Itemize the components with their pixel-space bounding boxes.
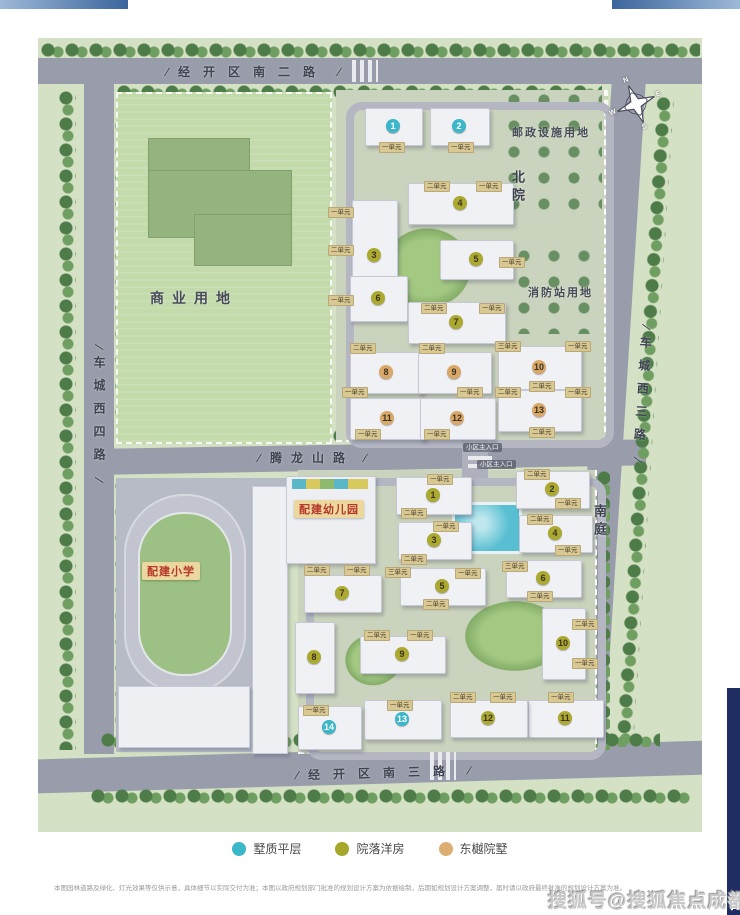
unit-label: 二单元	[572, 619, 598, 630]
building-number-marker: 1	[386, 119, 400, 133]
unit-label: 一单元	[328, 295, 354, 306]
building-number-marker: 13	[395, 712, 409, 726]
legend-item-flat: 墅质平层	[232, 840, 301, 857]
top-right-blue-trim	[612, 0, 740, 9]
unit-label: 三单元	[495, 341, 521, 352]
unit-label: 二单元	[527, 591, 553, 602]
unit-label: 二单元	[424, 181, 450, 192]
unit-label: 一单元	[455, 568, 481, 579]
entrance-label-north: 小区主入口	[463, 443, 502, 452]
unit-label: 一单元	[355, 429, 381, 440]
building-number-marker: 9	[447, 365, 461, 379]
building-number-marker: 11	[380, 411, 394, 425]
unit-label: 一单元	[479, 303, 505, 314]
building-number-marker: 7	[335, 586, 349, 600]
unit-label: 二单元	[401, 508, 427, 519]
building-number-marker: 6	[536, 571, 550, 585]
building-number-marker: 7	[449, 315, 463, 329]
unit-label: 一单元	[565, 387, 591, 398]
unit-label: 一单元	[555, 498, 581, 509]
unit-label: 二单元	[421, 303, 447, 314]
compass-north-letter: N	[622, 76, 629, 84]
road-label-middle: 腾龙山路	[248, 449, 376, 466]
watermark-text: 搜狐号@搜狐焦点成都站	[548, 886, 740, 913]
building-number-marker: 10	[532, 360, 546, 374]
site-plan-page: 配建幼儿园 配建小学 12345678910111213123456789101…	[0, 0, 740, 915]
building-number-marker: 4	[548, 526, 562, 540]
unit-label: 一单元	[490, 692, 516, 703]
unit-label: 二单元	[328, 245, 354, 256]
unit-label: 一单元	[565, 341, 591, 352]
flat-color-dot	[232, 842, 246, 856]
building-number-marker: 12	[481, 711, 495, 725]
building-number-marker: 3	[427, 533, 441, 547]
road-label-west-4: 车城西四路	[91, 338, 108, 489]
building-number-marker: 14	[322, 720, 336, 734]
building-number-marker: 8	[307, 650, 321, 664]
commercial-land-label: 商业用地	[150, 288, 238, 308]
building-number-marker: 4	[453, 196, 467, 210]
building-number-marker: 10	[556, 636, 570, 650]
legend-label: 院落洋房	[356, 840, 404, 857]
legend-label: 墅质平层	[253, 840, 301, 857]
unit-label: 一单元	[344, 565, 370, 576]
unit-label: 一单元	[499, 257, 525, 268]
unit-label: 二单元	[304, 565, 330, 576]
legend: 墅质平层 院落洋房 东樾院墅	[0, 840, 740, 857]
building-number-marker: 2	[545, 482, 559, 496]
building-number-marker: 5	[435, 579, 449, 593]
unit-label: 一单元	[407, 630, 433, 641]
unit-label: 一单元	[342, 387, 368, 398]
unit-label: 一单元	[433, 521, 459, 532]
unit-label: 二单元	[527, 514, 553, 525]
legend-item-courtyard: 东樾院墅	[439, 840, 508, 857]
legend-label: 东樾院墅	[460, 840, 508, 857]
right-navy-trim	[727, 688, 740, 915]
building-number-marker: 12	[450, 411, 464, 425]
unit-label: 一单元	[476, 181, 502, 192]
unit-label: 二单元	[419, 343, 445, 354]
building-number-marker: 13	[532, 403, 546, 417]
unit-label: 一单元	[427, 474, 453, 485]
compass-west-letter: W	[609, 108, 618, 117]
unit-label: 一单元	[548, 692, 574, 703]
unit-label: 一单元	[303, 705, 329, 716]
top-left-blue-trim	[0, 0, 128, 9]
courtyard-color-dot	[439, 842, 453, 856]
unit-label: 三单元	[385, 567, 411, 578]
building-number-marker: 3	[367, 248, 381, 262]
unit-label: 二单元	[401, 554, 427, 565]
unit-label: 二单元	[450, 692, 476, 703]
unit-label: 一单元	[424, 429, 450, 440]
building-number-marker: 1	[426, 488, 440, 502]
unit-label: 二单元	[524, 469, 550, 480]
north-court-label: 北院	[508, 170, 527, 206]
building-number-marker: 9	[395, 647, 409, 661]
unit-label: 二单元	[350, 343, 376, 354]
unit-label: 二单元	[495, 387, 521, 398]
unit-label: 三单元	[502, 561, 528, 572]
unit-label: 二单元	[529, 381, 555, 392]
postal-land-label: 邮政设施用地	[512, 124, 590, 140]
building-number-marker: 11	[558, 711, 572, 725]
legend-item-terrace: 院落洋房	[335, 840, 404, 857]
entrance-label-south: 小区主入口	[477, 460, 516, 469]
unit-label: 一单元	[572, 658, 598, 669]
unit-label: 一单元	[379, 142, 405, 153]
compass-star-icon	[610, 78, 662, 130]
building-number-marker: 8	[379, 365, 393, 379]
building-number-marker: 5	[469, 252, 483, 266]
unit-label: 二单元	[364, 630, 390, 641]
kindergarten-roof-tiles	[292, 479, 368, 489]
buildings-layer: 123456789101112131234567891011121314一单元一…	[38, 38, 702, 832]
building-number-marker: 6	[371, 291, 385, 305]
fire-station-land-label: 消防站用地	[528, 284, 593, 300]
south-court-label: 南庭	[590, 504, 609, 540]
school-label: 配建小学	[142, 562, 200, 580]
building-number-marker: 2	[452, 119, 466, 133]
unit-label: 一单元	[448, 142, 474, 153]
unit-label: 一单元	[387, 700, 413, 711]
kindergarten-label: 配建幼儿园	[294, 500, 364, 518]
unit-label: 二单元	[423, 599, 449, 610]
unit-label: 一单元	[457, 387, 483, 398]
road-label-south-2: 经开区南二路	[156, 63, 350, 80]
unit-label: 一单元	[555, 545, 581, 556]
unit-label: 二单元	[529, 427, 555, 438]
unit-label: 一单元	[328, 207, 354, 218]
terrace-color-dot	[335, 842, 349, 856]
site-plan-map: 配建幼儿园 配建小学 12345678910111213123456789101…	[38, 38, 702, 832]
